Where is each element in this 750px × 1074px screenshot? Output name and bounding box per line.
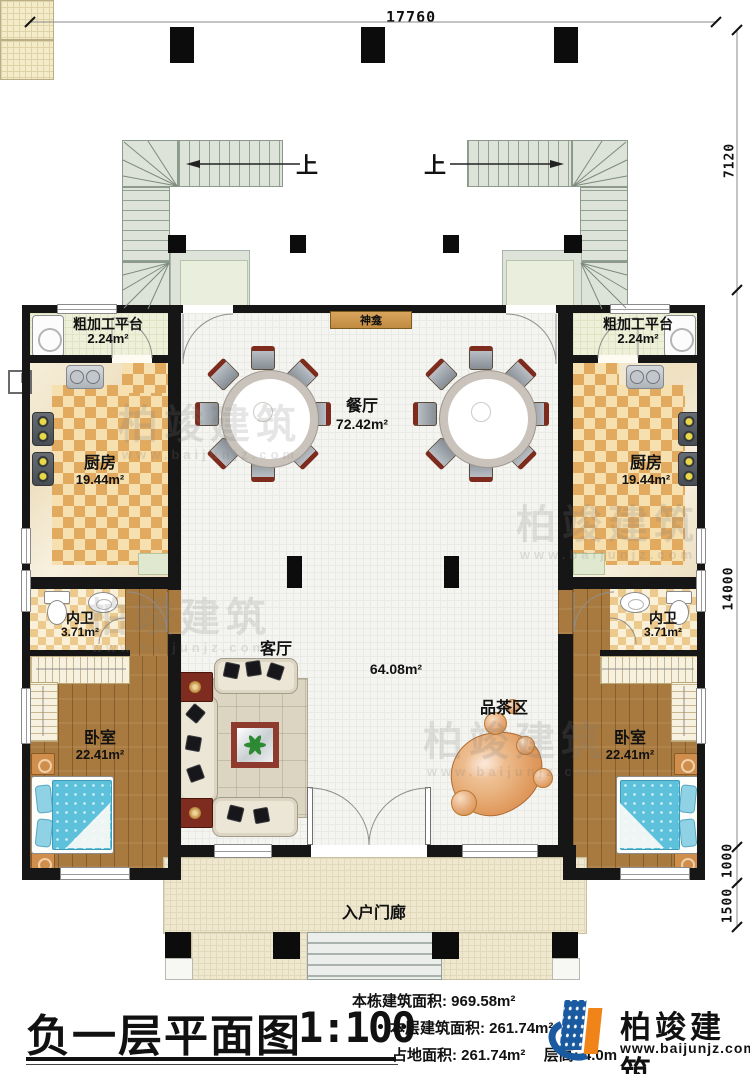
column bbox=[170, 27, 194, 63]
living-label: 客厅 bbox=[260, 641, 292, 659]
brand-logo-icon bbox=[546, 994, 618, 1066]
column bbox=[361, 27, 385, 63]
stat-floor-area: 本层建筑面积: 261.74m² bbox=[390, 1017, 553, 1038]
bedroom-right-label: 卧室22.41m² bbox=[606, 730, 654, 763]
nightstand bbox=[674, 753, 698, 775]
dimension-right-1500: 1500 bbox=[721, 876, 736, 936]
porch-column bbox=[273, 932, 300, 959]
sheet-title: 负一层平面图 bbox=[26, 1000, 302, 1064]
stair-up-label-right: 上 bbox=[424, 148, 446, 180]
dimension-right-7120: 7120 bbox=[723, 126, 738, 196]
side-table bbox=[177, 798, 213, 828]
column bbox=[168, 235, 186, 253]
side-table bbox=[177, 672, 213, 702]
kitchen-right-label: 厨房19.44m² bbox=[622, 455, 670, 488]
entry-door-leaf bbox=[307, 787, 313, 845]
closet bbox=[30, 682, 58, 742]
closet bbox=[30, 656, 130, 684]
porch-label: 入户门廊 bbox=[342, 905, 406, 923]
kitchen-left-label: 厨房19.44m² bbox=[76, 455, 124, 488]
closet bbox=[600, 656, 699, 684]
bed-right bbox=[616, 776, 699, 854]
platform-left-label: 粗加工平台2.24m² bbox=[73, 316, 143, 347]
porch-column bbox=[165, 932, 191, 958]
porch-column bbox=[432, 932, 459, 959]
shrine-label: 神龛 bbox=[360, 312, 382, 328]
platform-right-label: 粗加工平台2.24m² bbox=[603, 316, 673, 347]
entry-door-leaf bbox=[425, 787, 431, 845]
column bbox=[444, 556, 459, 588]
coffee-table bbox=[231, 722, 279, 768]
bath-left-label: 内卫3.71m² bbox=[61, 610, 99, 640]
stair-up-label-left: 上 bbox=[296, 148, 318, 180]
dining-label: 餐厅72.42m² bbox=[336, 398, 388, 432]
stove bbox=[32, 412, 54, 446]
brand-name: 柏竣建筑 bbox=[620, 1002, 750, 1074]
column bbox=[290, 235, 306, 253]
column bbox=[443, 235, 459, 253]
floor-plan-canvas: 17760 7120 14000 1000 1500 上 上 bbox=[0, 0, 750, 1074]
bath-right-label: 内卫3.71m² bbox=[644, 610, 682, 640]
bed-left bbox=[31, 776, 114, 854]
dining-table-right bbox=[422, 353, 538, 469]
kitchen-sink bbox=[66, 365, 104, 389]
bedroom-left-label: 卧室22.41m² bbox=[76, 730, 124, 763]
dimension-right-14000: 14000 bbox=[722, 549, 737, 629]
brand-url: www.baijunjz.com bbox=[620, 1040, 750, 1056]
shrine: 神龛 bbox=[330, 311, 412, 329]
washer bbox=[32, 315, 64, 357]
title-rule-thin bbox=[26, 1064, 398, 1065]
counter-board bbox=[573, 553, 605, 575]
title-rule bbox=[26, 1057, 396, 1061]
tea-label: 品茶区 bbox=[480, 700, 528, 718]
nightstand bbox=[31, 753, 55, 775]
column bbox=[287, 556, 302, 588]
hall-area-label: 64.08m² bbox=[370, 661, 422, 677]
kitchen-sink bbox=[626, 365, 664, 389]
closet bbox=[671, 682, 699, 742]
dimension-top: 17760 bbox=[386, 8, 436, 26]
column bbox=[564, 235, 582, 253]
stove bbox=[32, 452, 54, 486]
dining-table-left bbox=[204, 353, 320, 469]
counter-board bbox=[138, 553, 170, 575]
entry-steps bbox=[307, 932, 442, 980]
porch-column bbox=[552, 932, 578, 958]
stat-total-area: 本栋建筑面积: 969.58m² bbox=[352, 990, 515, 1011]
column bbox=[554, 27, 578, 63]
